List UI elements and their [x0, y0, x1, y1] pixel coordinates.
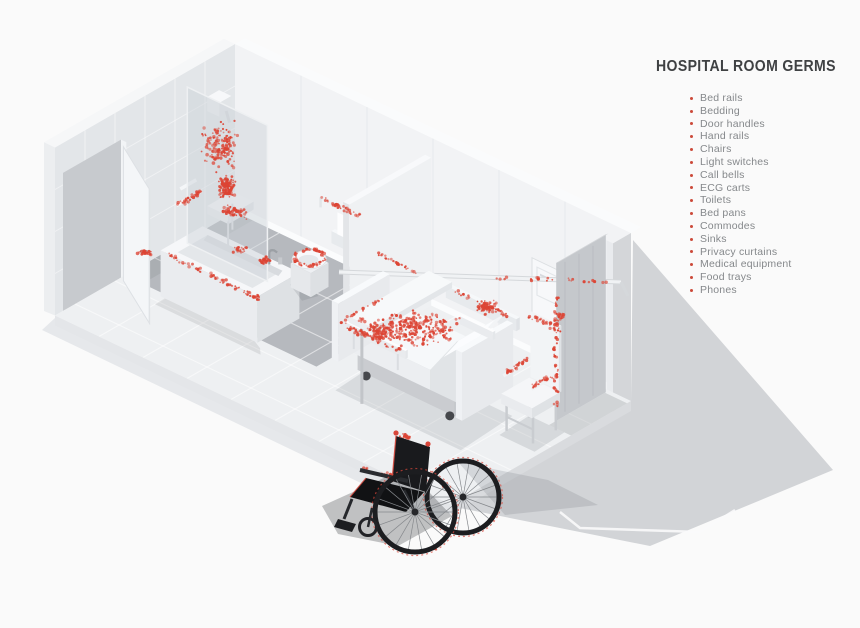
bullet-dot — [690, 122, 693, 125]
legend-item-label: Bedding — [700, 105, 740, 118]
legend-item: Medical equipment — [690, 258, 856, 271]
legend-item-label: Light switches — [700, 156, 769, 169]
legend-item-label: Commodes — [700, 220, 755, 233]
legend-item: Hand rails — [690, 130, 856, 143]
bullet-dot — [690, 276, 693, 279]
legend-item-label: Chairs — [700, 143, 732, 156]
legend-item-label: Hand rails — [700, 130, 749, 143]
legend-item: Door handles — [690, 118, 856, 131]
legend-item: Call bells — [690, 169, 856, 182]
legend-item-label: Medical equipment — [700, 258, 792, 271]
legend-item: Privacy curtains — [690, 246, 856, 259]
legend-item: Bed rails — [690, 92, 856, 105]
bullet-dot — [690, 199, 693, 202]
bullet-dot — [690, 186, 693, 189]
bed-wheel — [445, 411, 454, 420]
bullet-dot — [690, 174, 693, 177]
legend-item-label: ECG carts — [700, 182, 750, 195]
germ-legend: HOSPITAL ROOM GERMS Bed railsBeddingDoor… — [656, 58, 856, 297]
legend-item: Light switches — [690, 156, 856, 169]
legend-item-label: Phones — [700, 284, 737, 297]
legend-item-label: Food trays — [700, 271, 752, 284]
legend-item: Toilets — [690, 194, 856, 207]
bullet-dot — [690, 110, 693, 113]
legend-item: Sinks — [690, 233, 856, 246]
legend-item-label: Sinks — [700, 233, 727, 246]
legend-item: Food trays — [690, 271, 856, 284]
legend-item: Bedding — [690, 105, 856, 118]
legend-item-label: Privacy curtains — [700, 246, 777, 259]
bullet-dot — [690, 263, 693, 266]
legend-item: Commodes — [690, 220, 856, 233]
legend-title: HOSPITAL ROOM GERMS — [656, 58, 832, 76]
legend-item: Chairs — [690, 143, 856, 156]
legend-item-label: Toilets — [700, 194, 731, 207]
bullet-dot — [690, 135, 693, 138]
bullet-dot — [690, 148, 693, 151]
soap-dispenser-icon — [278, 257, 282, 264]
bullet-dot — [690, 250, 693, 253]
legend-item: Bed pans — [690, 207, 856, 220]
legend-item-label: Call bells — [700, 169, 745, 182]
legend-list: Bed railsBeddingDoor handlesHand railsCh… — [656, 92, 856, 297]
bullet-dot — [690, 289, 693, 292]
bullet-dot — [690, 238, 693, 241]
legend-item: Phones — [690, 284, 856, 297]
legend-item-label: Bed rails — [700, 92, 743, 105]
legend-item-label: Bed pans — [700, 207, 746, 220]
bullet-dot — [690, 97, 693, 100]
bullet-dot — [690, 161, 693, 164]
legend-item: ECG carts — [690, 182, 856, 195]
bullet-dot — [690, 225, 693, 228]
bullet-dot — [690, 212, 693, 215]
legend-item-label: Door handles — [700, 118, 765, 131]
